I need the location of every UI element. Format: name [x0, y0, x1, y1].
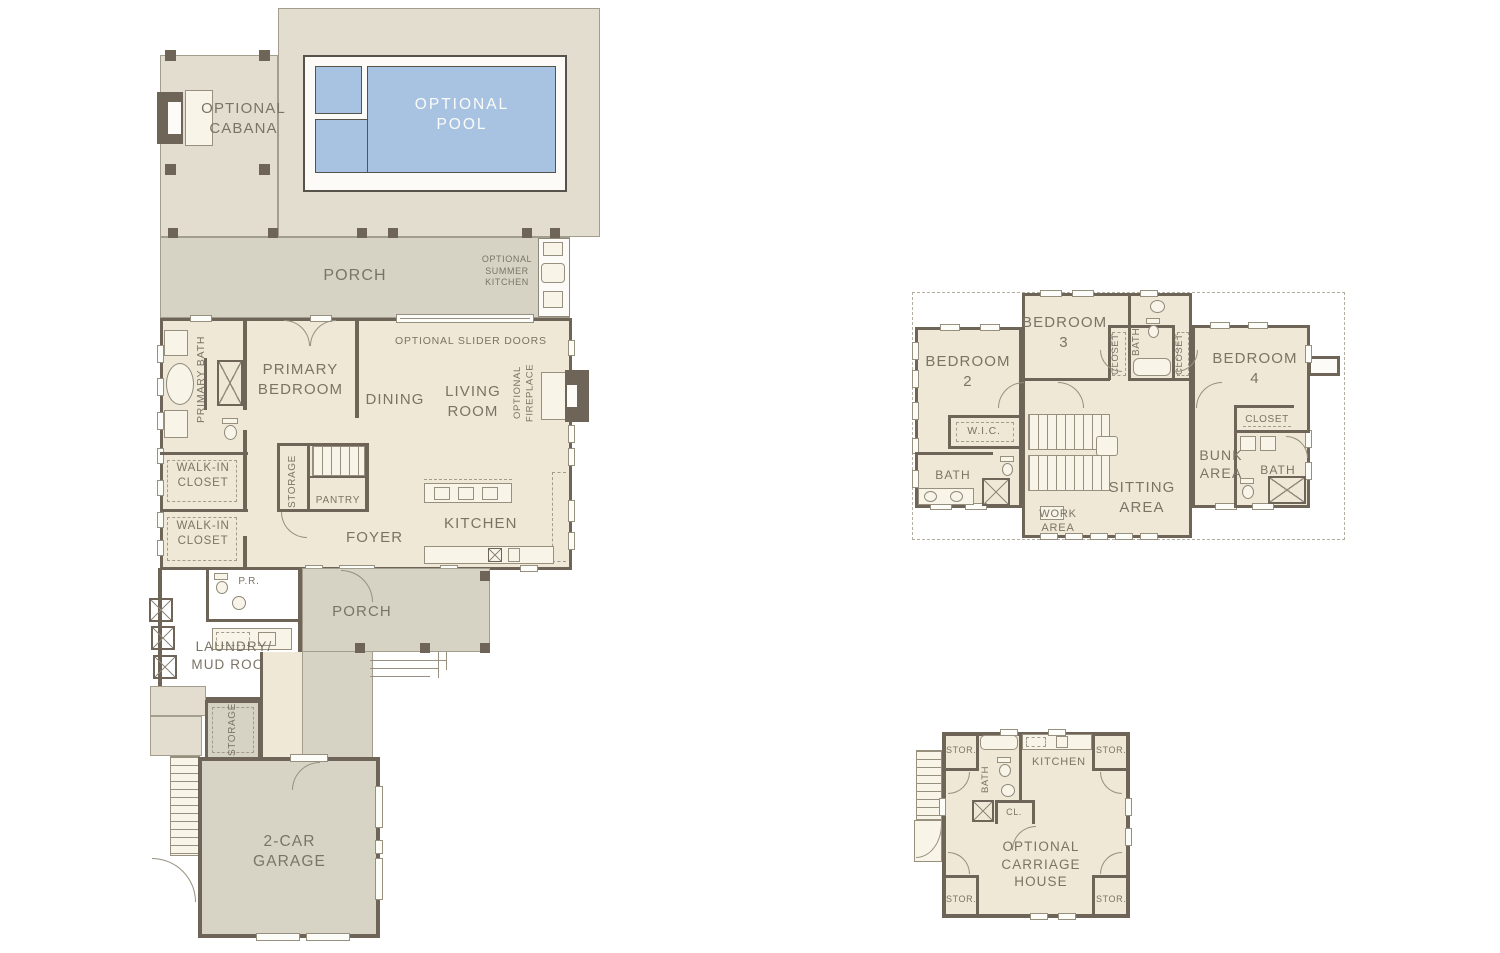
balcony — [1308, 356, 1340, 376]
wall — [976, 732, 979, 771]
window — [157, 378, 164, 396]
label-ch-kitchen: KITCHEN — [1028, 755, 1090, 769]
window — [980, 324, 1000, 331]
island-stool — [434, 487, 450, 500]
pool-step — [315, 119, 368, 173]
kitchen-sink — [488, 548, 502, 562]
bathtub — [980, 735, 1018, 750]
cabana-post — [259, 164, 270, 175]
window — [1125, 798, 1132, 816]
label-carriage-house: OPTIONAL CARRIAGE HOUSE — [994, 838, 1088, 891]
wall — [948, 446, 1022, 449]
shower — [1268, 476, 1306, 504]
wall — [1234, 430, 1310, 433]
bath-sink — [950, 491, 963, 502]
wall — [355, 318, 359, 418]
label-bedroom-3: BEDROOM 3 — [1022, 313, 1106, 352]
label-summer-kitchen: OPTIONAL SUMMER KITCHEN — [477, 254, 537, 289]
window — [375, 786, 383, 828]
toilet-tank — [214, 573, 228, 580]
garage-door — [256, 933, 300, 941]
label-work-area: WORK AREA — [1032, 507, 1084, 536]
label-walk-in-closet-2: WALK-IN CLOSET — [172, 519, 234, 549]
label-wic: W.I.C. — [962, 425, 1006, 439]
window — [375, 858, 383, 900]
wall — [1094, 875, 1130, 878]
mud-hall — [262, 652, 302, 757]
cabana-area — [160, 55, 278, 237]
porch-post — [355, 643, 365, 653]
window — [568, 425, 575, 443]
wall — [995, 800, 1035, 803]
bathtub — [166, 363, 194, 405]
door-arc — [152, 858, 196, 902]
window — [1305, 462, 1312, 480]
window — [940, 324, 960, 331]
cabana-post — [259, 50, 270, 61]
label-ch-bath: BATH — [980, 760, 993, 798]
label-lower-porch: PORCH — [327, 602, 397, 622]
porch-post — [268, 228, 278, 238]
kitchen-counter — [552, 472, 566, 562]
spa — [315, 66, 362, 114]
floor-plan-sheet: { "colors": { "interior_cream": "#EFE8D6… — [0, 0, 1500, 953]
window — [912, 370, 919, 388]
wall — [995, 800, 998, 824]
shower — [972, 800, 994, 822]
label-storage-lower: STORAGE — [226, 704, 239, 756]
label-stor-tl: STOR. — [946, 745, 976, 757]
wall — [942, 875, 978, 878]
window — [520, 565, 538, 572]
label-bedroom-4: BEDROOM 4 — [1212, 349, 1298, 388]
wall — [948, 415, 951, 449]
window — [1140, 290, 1158, 297]
island-stool — [482, 487, 498, 500]
porch-post — [388, 228, 398, 238]
toilet — [1002, 463, 1013, 476]
label-bath-a: BATH — [1130, 320, 1144, 364]
porch-post — [420, 643, 430, 653]
bath-sink — [1150, 300, 1165, 313]
wall — [206, 619, 302, 622]
label-cabana: OPTIONAL CABANA — [196, 99, 291, 138]
kitchen-range — [1026, 737, 1046, 747]
label-fireplace: OPTIONAL FIREPLACE — [512, 362, 538, 424]
porch-post — [522, 228, 532, 238]
label-kitchen: KITCHEN — [444, 514, 516, 534]
label-foyer: FOYER — [346, 528, 402, 548]
wall — [160, 452, 248, 455]
toilet — [999, 764, 1011, 777]
wall — [277, 443, 280, 512]
label-pantry: PANTRY — [314, 494, 362, 507]
window — [1248, 322, 1268, 329]
summer-kitchen-grill — [541, 263, 565, 283]
wall — [1234, 405, 1294, 408]
vanity-sink — [164, 330, 188, 356]
side-landing — [150, 716, 202, 756]
porch-post — [168, 228, 178, 238]
toilet-tank — [1146, 318, 1160, 324]
cabana-entry-opening — [168, 102, 181, 134]
window — [1252, 503, 1274, 510]
wall — [915, 452, 993, 455]
window — [157, 512, 164, 528]
step — [370, 660, 446, 661]
kitchen-range — [508, 548, 520, 562]
window — [157, 480, 164, 496]
stairs-lower-run — [1028, 455, 1110, 491]
label-sitting-area: SITTING AREA — [1102, 478, 1182, 517]
label-stor-br: STOR. — [1096, 894, 1126, 906]
toilet — [1242, 485, 1254, 499]
fireplace-firebox — [567, 385, 577, 407]
exterior-stairs — [170, 756, 200, 856]
label-living-room: LIVING ROOM — [442, 382, 504, 421]
window — [568, 500, 575, 522]
toilet-tank — [997, 757, 1011, 763]
slider-door-line — [400, 318, 530, 319]
bath-sink — [924, 491, 937, 502]
window — [568, 532, 575, 550]
wall — [243, 536, 247, 570]
window — [912, 402, 919, 420]
counter-dash — [424, 479, 512, 480]
porch-post — [480, 643, 490, 653]
cabana-post — [165, 50, 176, 61]
window — [1090, 533, 1108, 540]
label-stor-tr: STOR. — [1096, 745, 1126, 757]
wall — [1094, 768, 1130, 771]
shower — [982, 478, 1010, 506]
label-ch-closet: CL. — [1000, 807, 1028, 819]
garage-door-opening — [290, 754, 328, 762]
side-stoop — [150, 686, 206, 716]
window — [157, 448, 164, 464]
window — [912, 470, 919, 488]
wall — [243, 318, 247, 410]
wall — [1092, 875, 1095, 918]
label-bunk-area: BUNK AREA — [1191, 446, 1251, 482]
window — [568, 340, 575, 356]
island-stool — [458, 487, 474, 500]
cabana-post — [165, 164, 176, 175]
porch-post — [480, 571, 490, 581]
stair-landing — [1096, 436, 1118, 456]
bath-sink — [1260, 436, 1276, 451]
toilet — [224, 425, 237, 440]
wall — [976, 875, 979, 918]
wall — [1128, 378, 1192, 381]
window — [157, 540, 164, 556]
lower-porch-walk — [302, 652, 373, 759]
porch-post — [357, 228, 367, 238]
label-bath-c: BATH — [1254, 463, 1302, 479]
window — [1072, 290, 1094, 297]
toilet-tank — [1000, 456, 1014, 462]
label-dining: DINING — [363, 390, 427, 410]
summer-kitchen-fixture — [543, 242, 563, 256]
appliance — [153, 655, 177, 679]
window — [157, 345, 164, 363]
window — [375, 840, 383, 854]
wall — [948, 415, 1022, 418]
window — [939, 798, 946, 816]
wall — [942, 768, 978, 771]
porch-post — [550, 228, 560, 238]
vanity-sink — [164, 410, 188, 438]
step — [446, 652, 447, 670]
step — [370, 668, 438, 669]
step — [370, 676, 430, 677]
label-bedroom-2: BEDROOM 2 — [925, 352, 1011, 391]
wall — [310, 476, 366, 478]
window — [190, 315, 212, 322]
label-powder-room: P.R. — [232, 575, 266, 588]
step — [438, 652, 439, 678]
wall — [1022, 378, 1110, 381]
window — [1140, 533, 1158, 540]
appliance — [151, 626, 175, 650]
label-slider-doors: OPTIONAL SLIDER DOORS — [395, 335, 535, 349]
window — [1058, 913, 1076, 920]
shower — [217, 360, 243, 406]
label-storage-upper: STORAGE — [286, 455, 299, 509]
toilet — [216, 581, 228, 594]
window — [1210, 322, 1230, 329]
window — [157, 412, 164, 430]
wall — [1032, 800, 1035, 824]
label-garage: 2-CAR GARAGE — [252, 832, 327, 872]
label-closet-c: CLOSET — [1243, 413, 1291, 427]
window — [912, 342, 919, 360]
kitchen-sink — [1056, 736, 1068, 748]
label-pool: OPTIONAL POOL — [412, 95, 512, 135]
wall — [206, 568, 209, 622]
wall — [1092, 732, 1095, 771]
window — [568, 448, 575, 466]
label-upper-porch: PORCH — [320, 266, 390, 287]
label-primary-bath: PRIMARY BATH — [195, 334, 209, 424]
wall — [243, 430, 247, 512]
window — [1048, 729, 1066, 736]
label-walk-in-closet-1: WALK-IN CLOSET — [172, 461, 234, 491]
window — [1040, 290, 1062, 297]
summer-kitchen-fixture — [543, 291, 563, 308]
garage-door — [306, 933, 350, 941]
bath-sink — [1001, 784, 1015, 797]
appliance — [149, 598, 173, 622]
interior-stairs — [312, 446, 365, 476]
toilet-tank — [222, 418, 238, 424]
label-stor-bl: STOR. — [946, 894, 976, 906]
window — [1030, 913, 1048, 920]
wall — [160, 509, 248, 512]
pr-sink — [232, 596, 246, 610]
label-bath-b: BATH — [928, 468, 978, 484]
window — [1125, 828, 1132, 846]
window — [1000, 729, 1018, 736]
toilet — [1148, 325, 1159, 338]
window — [1115, 533, 1133, 540]
window — [1305, 345, 1312, 363]
label-primary-bedroom: PRIMARY BEDROOM — [253, 360, 348, 399]
